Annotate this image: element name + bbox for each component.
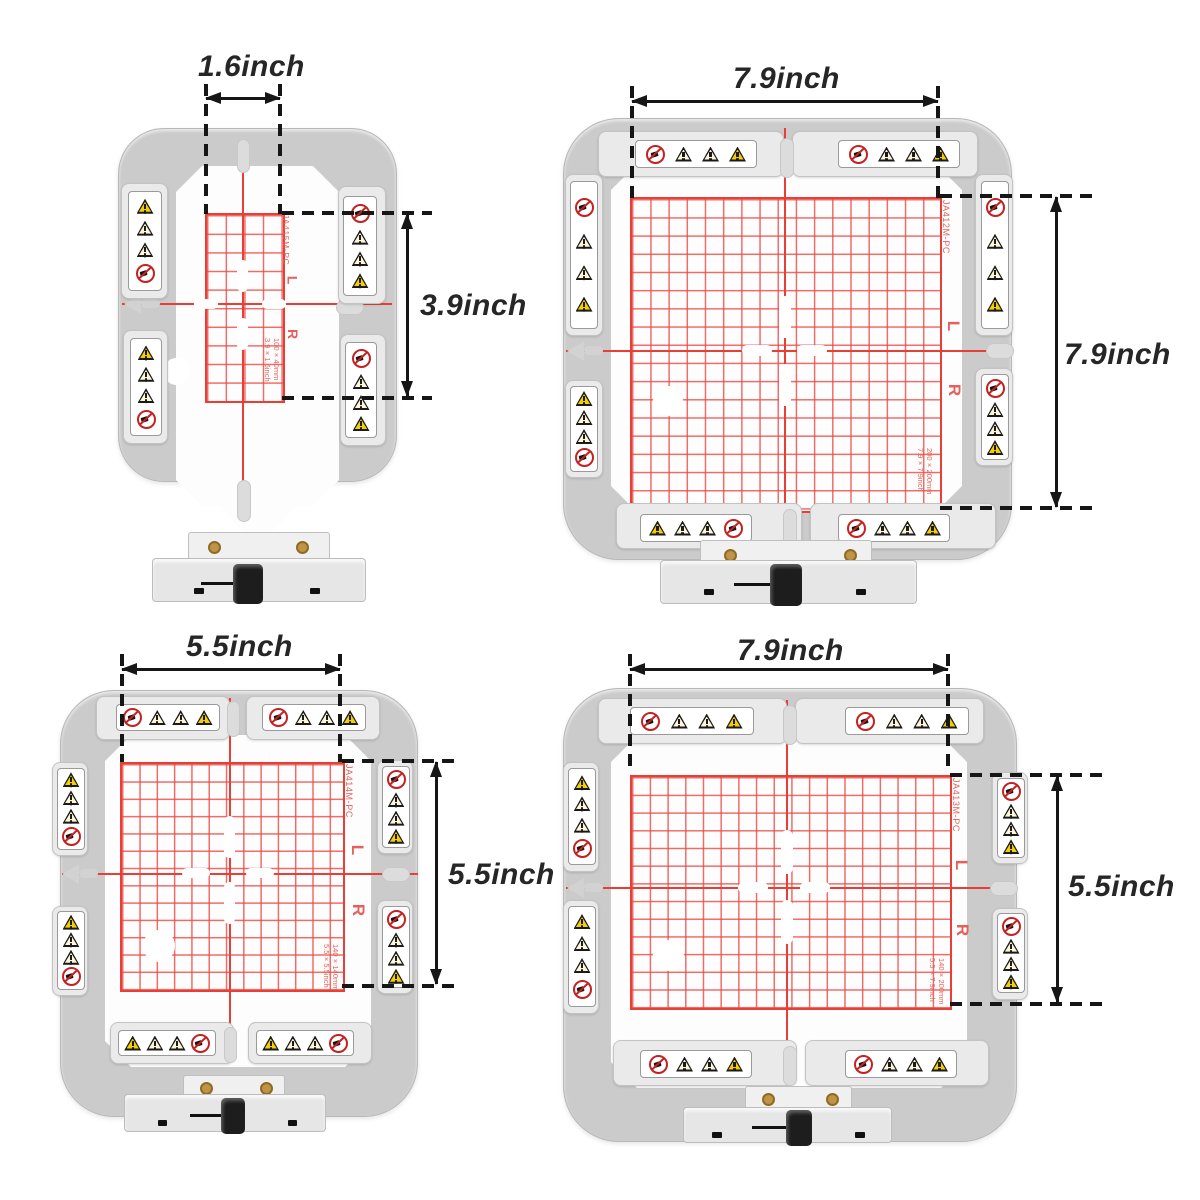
height-dimension-label: 3.9inch — [420, 289, 527, 323]
warning-label — [997, 778, 1025, 858]
hazard-triangle-icon — [63, 790, 80, 805]
no-touch-icon — [123, 708, 142, 727]
warning-label — [345, 342, 377, 438]
hazard-triangle-icon — [701, 1057, 718, 1072]
slider-knob — [233, 564, 263, 604]
no-touch-icon — [137, 410, 156, 429]
hazard-triangle-icon — [702, 147, 719, 162]
alert-triangle-icon — [574, 775, 591, 790]
height-dimension-label: 7.9inch — [1064, 338, 1171, 372]
model-label: JA412M-PC — [941, 200, 951, 254]
warning-label — [130, 338, 162, 436]
width-dimension-label: 1.6inch — [198, 50, 305, 84]
no-touch-icon — [986, 198, 1005, 217]
hazard-triangle-icon — [63, 809, 80, 824]
warning-label — [838, 514, 950, 542]
base-notch — [712, 1132, 722, 1138]
hazard-triangle-icon — [1003, 804, 1020, 819]
center-cutout — [262, 299, 286, 309]
hazard-triangle-icon — [905, 147, 922, 162]
marker-l: L — [347, 845, 367, 855]
frame-notch — [783, 1046, 797, 1086]
alert-triangle-icon — [726, 714, 743, 729]
hazard-triangle-icon — [987, 421, 1004, 436]
hazard-triangle-icon — [574, 796, 591, 811]
no-touch-icon — [847, 519, 866, 538]
hazard-triangle-icon — [675, 147, 692, 162]
hazard-triangle-icon — [878, 147, 895, 162]
hazard-triangle-icon — [913, 714, 930, 729]
center-cutout — [779, 364, 791, 406]
hazard-triangle-icon — [987, 265, 1004, 280]
frame-notch — [986, 343, 1014, 359]
base-notch — [855, 1132, 865, 1138]
hazard-triangle-icon — [138, 388, 155, 403]
no-touch-icon — [269, 708, 288, 727]
marker-l: L — [943, 321, 963, 331]
warning-label — [57, 911, 85, 990]
hazard-triangle-icon — [137, 242, 154, 257]
warning-label — [997, 913, 1025, 993]
warning-label — [256, 1030, 354, 1056]
brass-screw — [208, 541, 221, 554]
hazard-triangle-icon — [698, 714, 715, 729]
hazard-triangle-icon — [671, 714, 688, 729]
marker-l: L — [284, 276, 300, 285]
hazard-triangle-icon — [63, 932, 80, 947]
hazard-triangle-icon — [146, 1036, 163, 1051]
slider-knob — [786, 1110, 812, 1146]
slider-knob — [770, 564, 802, 606]
alert-triangle-icon — [931, 1057, 948, 1072]
brass-screw — [826, 1093, 839, 1106]
marker-r: R — [944, 384, 964, 396]
hazard-triangle-icon — [574, 936, 591, 951]
hazard-triangle-icon — [63, 950, 80, 965]
no-touch-icon — [646, 145, 665, 164]
no-touch-icon — [62, 967, 81, 986]
center-cutout — [781, 830, 793, 874]
dashed-guide — [120, 654, 124, 762]
needle-hole — [653, 940, 684, 971]
center-cutout — [797, 345, 827, 356]
no-touch-icon — [575, 448, 594, 467]
dashed-guide — [940, 506, 1100, 510]
hazard-triangle-icon — [318, 710, 335, 725]
warning-label — [568, 768, 596, 865]
alert-triangle-icon — [353, 416, 370, 431]
hazard-triangle-icon — [676, 1057, 693, 1072]
no-touch-icon — [854, 1055, 873, 1074]
knob-pointer — [734, 583, 772, 586]
needle-hole — [653, 386, 683, 416]
grid-size-label: 200×200mm 7.9×7.9inch — [916, 448, 934, 495]
brass-screw — [296, 541, 309, 554]
width-dimension-label: 5.5inch — [186, 630, 293, 664]
height-dimension-arrow — [435, 762, 438, 984]
base-notch — [288, 1120, 297, 1126]
center-cutout — [237, 318, 248, 350]
warning-label — [640, 1050, 752, 1078]
hazard-triangle-icon — [574, 958, 591, 973]
product-size-diagram: JA415M-PC L R 100×40mm 3.9×1.6inch 1.6in… — [0, 0, 1200, 1200]
warning-label — [981, 374, 1009, 460]
dashed-guide — [630, 86, 634, 198]
warning-label — [262, 704, 366, 731]
no-touch-icon — [986, 379, 1005, 398]
dashed-guide — [628, 654, 632, 774]
hazard-triangle-icon — [353, 374, 370, 389]
base-notch — [194, 588, 204, 594]
hazard-triangle-icon — [987, 402, 1004, 417]
warning-label — [118, 1030, 216, 1056]
no-touch-icon — [856, 712, 875, 731]
hazard-triangle-icon — [172, 710, 189, 725]
height-dimension-arrow — [1055, 197, 1058, 507]
center-cutout — [194, 299, 218, 309]
alert-triangle-icon — [1003, 839, 1020, 854]
dashed-guide — [940, 194, 1100, 198]
frame-notch — [382, 867, 410, 882]
alert-triangle-icon — [63, 915, 80, 930]
no-touch-icon — [62, 827, 81, 846]
embroidery-grid — [630, 775, 952, 1010]
warning-label — [981, 181, 1009, 329]
frame-notch — [783, 705, 797, 745]
warning-label — [845, 707, 969, 735]
dashed-guide — [946, 654, 950, 774]
crosshair-horizontal — [62, 873, 418, 875]
alert-triangle-icon — [726, 1057, 743, 1072]
crosshair-vertical — [229, 698, 231, 1058]
alert-triangle-icon — [342, 710, 359, 725]
no-touch-icon — [649, 1055, 668, 1074]
hazard-triangle-icon — [576, 429, 593, 444]
no-touch-icon — [191, 1034, 210, 1053]
warning-label — [568, 906, 596, 1007]
dashed-guide — [950, 1002, 1106, 1006]
dashed-guide — [204, 84, 208, 214]
marker-l: L — [951, 860, 971, 870]
no-touch-icon — [387, 910, 406, 929]
no-touch-icon — [641, 712, 660, 731]
hazard-triangle-icon — [906, 1057, 923, 1072]
frame-notch — [224, 1027, 237, 1063]
no-touch-icon — [329, 1034, 348, 1053]
hazard-triangle-icon — [1003, 821, 1020, 836]
warning-label — [570, 386, 598, 472]
knob-pointer — [752, 1126, 787, 1129]
hazard-triangle-icon — [699, 521, 716, 536]
hazard-triangle-icon — [149, 710, 166, 725]
warning-label — [635, 140, 757, 168]
left-arrow-marker — [567, 341, 584, 361]
no-touch-icon — [573, 980, 592, 999]
base-notch — [310, 588, 320, 594]
center-cutout — [742, 345, 772, 356]
height-dimension-arrow — [1056, 776, 1059, 1002]
hazard-triangle-icon — [1003, 939, 1020, 954]
warning-label — [382, 906, 410, 988]
crosshair-horizontal — [566, 887, 1016, 889]
dashed-guide — [338, 654, 342, 762]
alert-triangle-icon — [1003, 974, 1020, 989]
model-label: JA415M-PC — [281, 214, 291, 265]
frame-notch — [237, 480, 251, 522]
center-cutout — [224, 816, 235, 858]
center-cutout — [246, 868, 274, 878]
no-touch-icon — [136, 264, 155, 283]
left-arrow-marker — [62, 864, 79, 884]
center-cutout — [237, 260, 248, 292]
width-dimension-label: 7.9inch — [733, 62, 840, 96]
dashed-guide — [936, 86, 940, 198]
knob-pointer — [201, 582, 235, 585]
alert-triangle-icon — [196, 710, 213, 725]
model-label: JA413M-PC — [951, 778, 961, 832]
grid-size-label: 140×200mm 5.5×7.9inch — [928, 958, 946, 1005]
center-cutout — [224, 882, 235, 924]
width-dimension-arrow — [206, 97, 280, 100]
warning-label — [838, 140, 960, 168]
base-notch — [856, 589, 866, 595]
alert-triangle-icon — [649, 521, 666, 536]
hazard-triangle-icon — [307, 1036, 324, 1051]
hazard-triangle-icon — [886, 714, 903, 729]
no-touch-icon — [352, 349, 371, 368]
center-cutout — [781, 900, 793, 944]
warning-label — [630, 707, 754, 735]
warning-label — [116, 704, 220, 731]
no-touch-icon — [1002, 782, 1021, 801]
width-dimension-arrow — [630, 668, 948, 671]
frame-notch — [780, 138, 794, 178]
alert-triangle-icon — [124, 1036, 141, 1051]
alert-triangle-icon — [729, 147, 746, 162]
alert-triangle-icon — [576, 297, 593, 312]
alert-triangle-icon — [987, 440, 1004, 455]
warning-label — [845, 1050, 957, 1078]
marker-r: R — [952, 924, 972, 936]
frame-notch — [237, 139, 250, 173]
height-dimension-arrow — [406, 214, 409, 396]
left-arrow-marker — [79, 869, 98, 878]
frame-notch — [227, 701, 240, 737]
hazard-triangle-icon — [1003, 956, 1020, 971]
warning-label — [570, 181, 598, 329]
no-touch-icon — [387, 770, 406, 789]
hazard-triangle-icon — [899, 521, 916, 536]
left-arrow-marker — [584, 883, 603, 892]
hazard-triangle-icon — [388, 792, 405, 807]
alert-triangle-icon — [574, 914, 591, 929]
frame-notch — [990, 881, 1018, 896]
needle-hole — [143, 930, 175, 962]
marker-r: R — [348, 904, 368, 916]
hazard-triangle-icon — [284, 1036, 301, 1051]
hazard-triangle-icon — [574, 818, 591, 833]
left-arrow-marker — [141, 299, 160, 308]
grid-size-label: 100×40mm 3.9×1.6inch — [263, 338, 281, 382]
no-touch-icon — [849, 145, 868, 164]
no-touch-icon — [575, 198, 594, 217]
no-touch-icon — [724, 519, 743, 538]
alert-triangle-icon — [388, 969, 405, 984]
center-cutout — [738, 882, 768, 893]
alert-triangle-icon — [932, 147, 949, 162]
warning-label — [382, 766, 410, 848]
model-label: JA414M-PC — [344, 764, 354, 818]
hazard-triangle-icon — [576, 234, 593, 249]
embroidery-grid — [630, 197, 942, 513]
hazard-triangle-icon — [137, 221, 154, 236]
hazard-triangle-icon — [138, 367, 155, 382]
height-dimension-label: 5.5inch — [448, 858, 555, 892]
hazard-triangle-icon — [295, 710, 312, 725]
alert-triangle-icon — [63, 772, 80, 787]
hazard-triangle-icon — [388, 811, 405, 826]
width-dimension-label: 7.9inch — [737, 634, 844, 668]
marker-r: R — [285, 329, 301, 339]
left-arrow-marker — [584, 346, 603, 355]
hazard-triangle-icon — [388, 932, 405, 947]
base-notch — [704, 589, 714, 595]
height-dimension-label: 5.5inch — [1068, 870, 1175, 904]
alert-triangle-icon — [138, 345, 155, 360]
hazard-triangle-icon — [987, 234, 1004, 249]
hazard-triangle-icon — [674, 521, 691, 536]
warning-label — [640, 514, 752, 542]
hazard-triangle-icon — [352, 251, 369, 266]
alert-triangle-icon — [388, 829, 405, 844]
grid-size-label: 140×140mm 5.5×5.5inch — [322, 944, 340, 991]
brass-screw — [762, 1093, 775, 1106]
dashed-guide — [950, 773, 1106, 777]
alert-triangle-icon — [262, 1036, 279, 1051]
slider-knob — [221, 1098, 245, 1134]
hazard-triangle-icon — [881, 1057, 898, 1072]
center-cutout — [779, 296, 791, 338]
alert-triangle-icon — [352, 273, 369, 288]
left-arrow-marker — [567, 878, 584, 898]
hazard-triangle-icon — [388, 951, 405, 966]
knob-pointer — [190, 1114, 222, 1117]
center-cutout — [800, 882, 830, 893]
no-touch-icon — [573, 839, 592, 858]
hazard-triangle-icon — [576, 410, 593, 425]
center-cutout — [182, 868, 210, 878]
hazard-triangle-icon — [352, 230, 369, 245]
hazard-triangle-icon — [576, 265, 593, 280]
hazard-triangle-icon — [169, 1036, 186, 1051]
alert-triangle-icon — [137, 199, 154, 214]
crosshair-horizontal — [566, 350, 1006, 352]
hazard-triangle-icon — [874, 521, 891, 536]
no-touch-icon — [1002, 917, 1021, 936]
alert-triangle-icon — [987, 297, 1004, 312]
alert-triangle-icon — [924, 521, 941, 536]
base-notch — [158, 1120, 167, 1126]
dashed-guide — [278, 84, 282, 214]
warning-label — [128, 191, 162, 291]
width-dimension-arrow — [632, 100, 938, 103]
warning-label — [57, 768, 85, 850]
width-dimension-arrow — [122, 668, 340, 671]
alert-triangle-icon — [576, 391, 593, 406]
